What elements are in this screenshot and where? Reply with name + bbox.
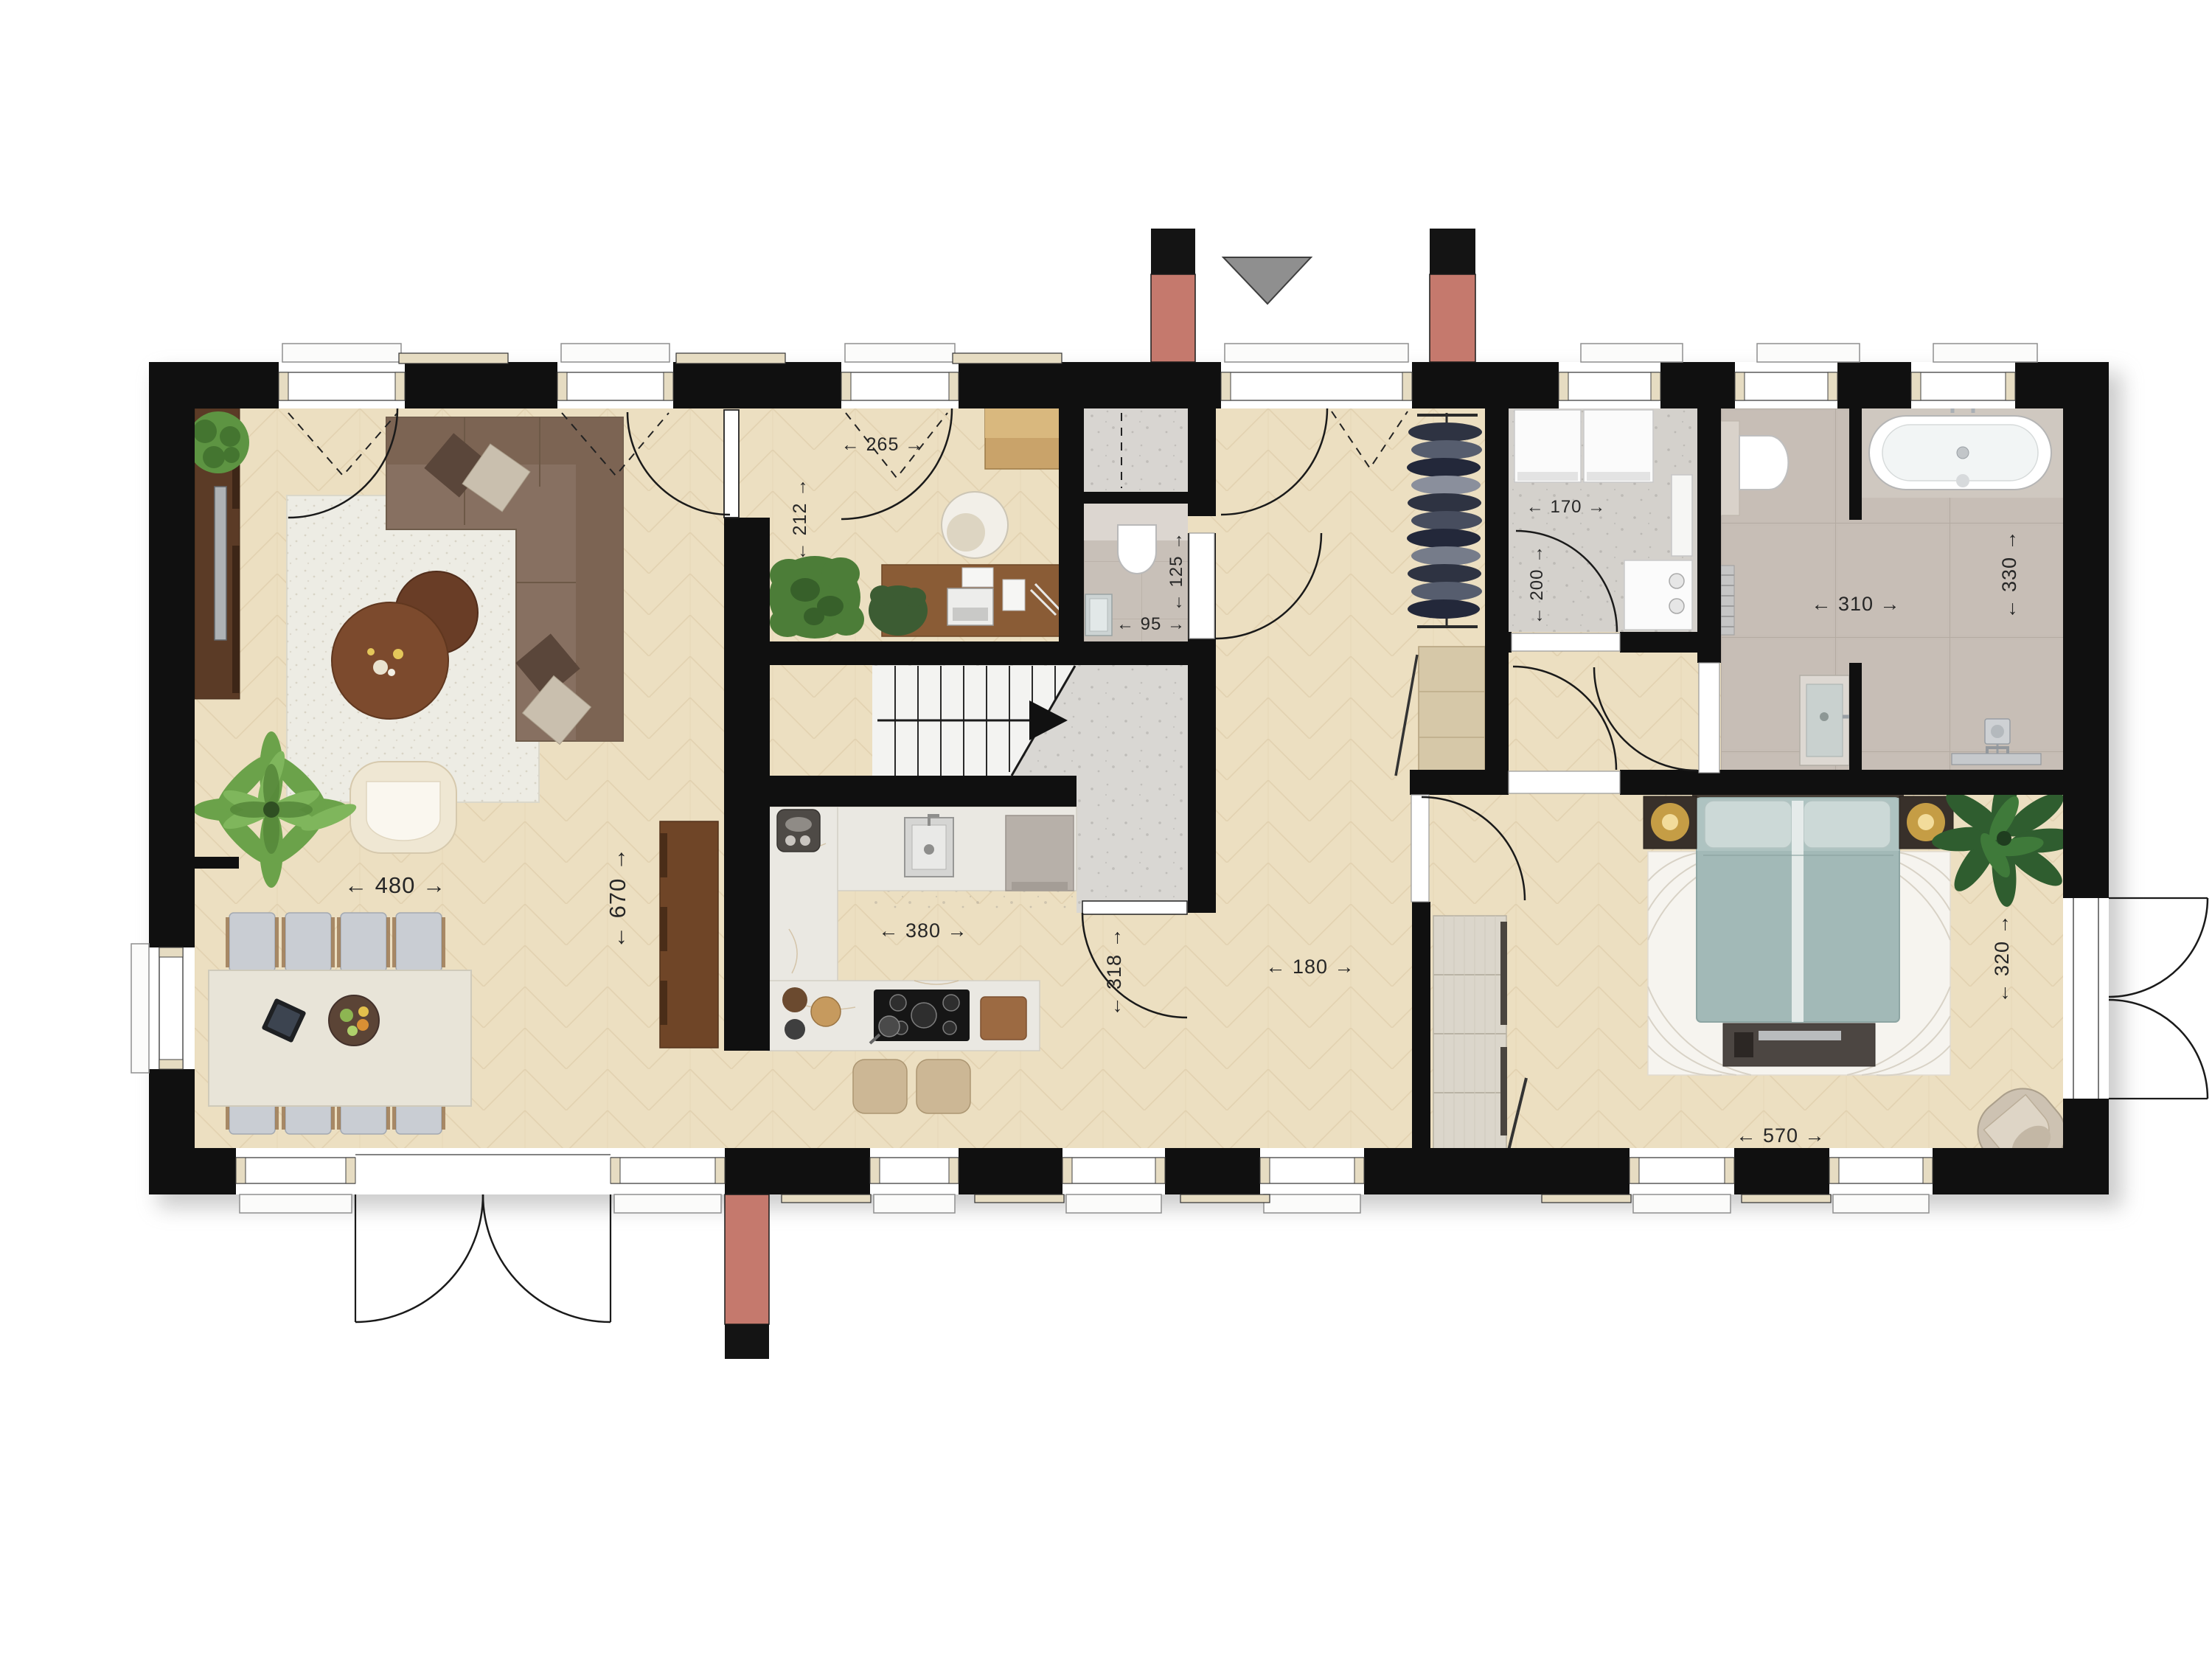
svg-text:← 212 →: ← 212 → [790, 478, 810, 561]
svg-text:← 380 →: ← 380 → [878, 919, 967, 942]
svg-text:← 170 →: ← 170 → [1526, 497, 1606, 517]
svg-text:← 200 →: ← 200 → [1527, 545, 1547, 625]
svg-text:← 670 →: ← 670 → [605, 847, 630, 949]
svg-text:← 180 →: ← 180 → [1265, 956, 1354, 978]
svg-text:← 318 →: ← 318 → [1103, 927, 1125, 1016]
svg-text:← 320 →: ← 320 → [1991, 914, 2013, 1003]
svg-text:← 330 →: ← 330 → [1998, 529, 2020, 619]
svg-text:← 265 →: ← 265 → [841, 434, 925, 455]
svg-text:← 125 →: ← 125 → [1166, 532, 1186, 611]
svg-text:← 95 →: ← 95 → [1116, 614, 1186, 634]
svg-text:← 480 →: ← 480 → [344, 872, 446, 898]
svg-text:← 310 →: ← 310 → [1811, 593, 1900, 615]
svg-text:← 570 →: ← 570 → [1736, 1124, 1825, 1147]
